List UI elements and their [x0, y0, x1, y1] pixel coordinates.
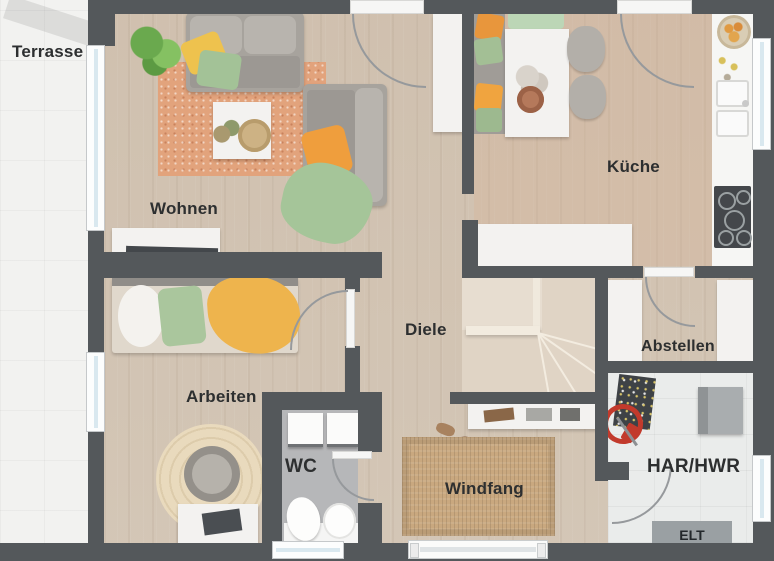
room-label-abstellen: Abstellen	[641, 338, 715, 356]
wc-washbasin	[327, 413, 358, 447]
terrace-door-kitchen	[617, 0, 692, 14]
wall-kitchen-bottom-right	[695, 266, 753, 278]
door-wc	[332, 451, 372, 459]
front-door-hinge	[410, 543, 419, 558]
room-label-arbeiten: Arbeiten	[186, 387, 257, 407]
burner	[724, 210, 745, 231]
plant	[130, 24, 186, 78]
room-label-diele: Diele	[405, 320, 447, 340]
front-door-leaf	[420, 547, 536, 552]
window-glass	[94, 49, 98, 227]
room-label-wohnen: Wohnen	[150, 199, 218, 219]
room-label-windfang: Windfang	[445, 479, 524, 499]
door-abstellen	[644, 267, 694, 277]
desk-chair-seat	[192, 454, 232, 494]
burner	[718, 230, 734, 246]
storage-panel	[717, 280, 753, 361]
hall-sideboard	[468, 402, 602, 429]
copper-vase	[517, 86, 544, 113]
window-glass	[276, 548, 340, 552]
electrical-panel-label: ELT	[679, 527, 704, 543]
pillow-green	[196, 49, 243, 90]
front-door-hinge	[537, 543, 546, 558]
staircase	[462, 278, 595, 392]
window-terrace-living	[86, 45, 105, 231]
wall-kitchen-bottom-left	[462, 266, 643, 278]
terrace-door-living	[350, 0, 424, 14]
room-label-wc: WC	[285, 456, 317, 478]
bench-pillow-green	[476, 108, 502, 132]
fruit-bowl	[717, 15, 751, 49]
chair	[569, 75, 606, 119]
bench-pillow-green	[473, 36, 503, 66]
wall-wohnen-arbeiten	[104, 252, 382, 278]
sideboard-item-brown	[483, 407, 514, 422]
wall-wc-right-lower	[358, 503, 382, 543]
window-utility	[752, 455, 771, 522]
burner	[736, 230, 752, 246]
tall-cabinet	[433, 14, 463, 132]
desk-chair	[184, 446, 240, 502]
burner	[718, 192, 736, 210]
sideboard-item-gray	[526, 408, 552, 421]
appliance-box	[698, 387, 743, 434]
sideboard-item-dark	[560, 408, 580, 421]
decor-tray	[238, 119, 271, 152]
window-glass	[760, 42, 764, 146]
bidet	[323, 503, 356, 539]
wall-windfang-top	[450, 392, 608, 404]
window-kitchen	[752, 38, 771, 150]
daybed-pillow-green	[157, 285, 207, 347]
window-glass	[760, 459, 764, 518]
burner	[736, 190, 751, 205]
sink-basin	[716, 110, 749, 137]
stair-landing	[462, 278, 542, 330]
window-wc	[272, 541, 344, 559]
wall-bottom	[0, 543, 774, 561]
stove-hob	[714, 186, 751, 248]
stair-landing-edge	[466, 326, 540, 335]
chair	[567, 26, 605, 72]
wall-abstellen-left	[595, 278, 608, 374]
storage-panel	[608, 280, 642, 361]
wall-kitchen-divider-upper	[462, 14, 474, 194]
room-label-terrasse: Terrasse	[12, 42, 83, 62]
wc-washbasin	[288, 413, 323, 447]
sofa-cushion	[244, 16, 296, 54]
wall-abstellen-bottom	[595, 361, 753, 373]
room-label-kueche: Küche	[607, 157, 660, 177]
floor-plan: ELT Terrasse Wohnen Küche Diele Abst	[0, 0, 774, 561]
room-label-har-hwr: HAR/HWR	[647, 456, 740, 478]
wall-wc-right-upper	[358, 410, 382, 452]
window-terrace-office	[86, 352, 105, 432]
wall-wc-top	[262, 392, 382, 410]
terrace-floor	[0, 0, 88, 561]
faucet	[742, 100, 749, 107]
kitchen-island	[478, 224, 632, 266]
window-glass	[94, 356, 98, 428]
stair-edge-vertical	[533, 278, 540, 332]
front-door	[408, 540, 548, 559]
wall-wc-left	[262, 394, 282, 543]
